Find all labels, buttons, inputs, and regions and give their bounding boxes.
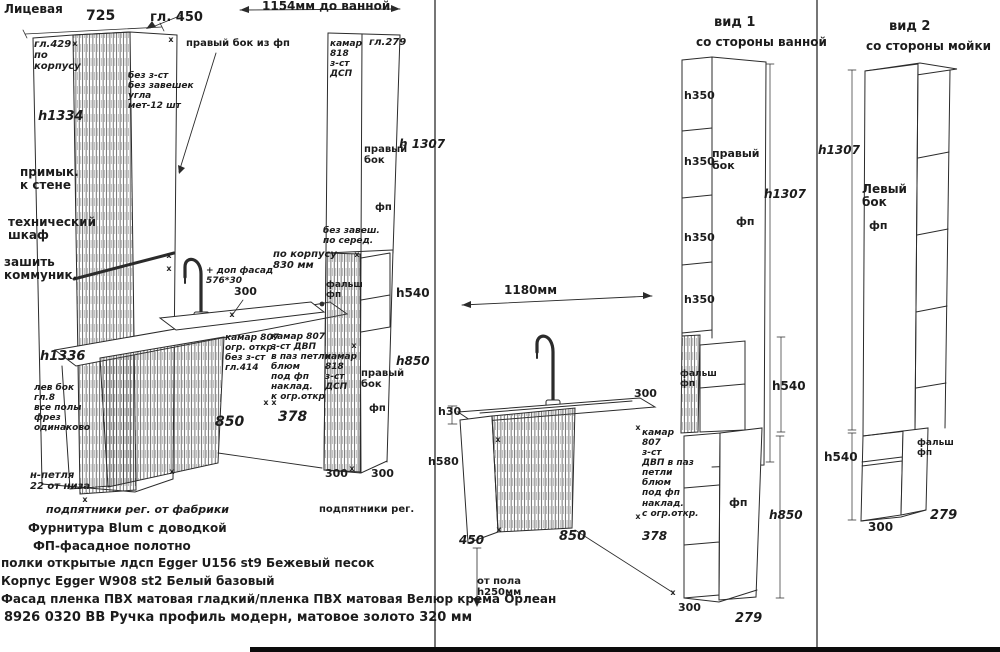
v1-fp-upper-label: фп — [736, 216, 755, 228]
v1-h540-label: h540 — [772, 380, 806, 393]
v2-left-side-label: Левый бок — [862, 183, 907, 210]
v1-dim-450: 450 — [459, 534, 484, 547]
technical-cabinet-note: технический шкаф — [8, 216, 96, 243]
v1-h580-label: h580 — [428, 456, 459, 468]
feet-note2: подпятники рег. — [319, 504, 414, 515]
extra-facade-note: + доп фасад 576*30 — [206, 266, 273, 286]
wall-adjacency-note: примык. к стене — [20, 166, 79, 193]
view1-faucet-icon — [537, 336, 560, 408]
dim-378: 378 — [278, 410, 307, 426]
mid-right-side-label2: правый бок — [361, 368, 404, 390]
view2-subtitle: со стороны мойки — [866, 40, 991, 53]
view1-title: вид 1 — [714, 16, 755, 31]
no-backwall-note: без з-ст без завешек угла мет-12 шт — [128, 71, 194, 111]
dim-300-b: 300 — [371, 468, 394, 480]
v1-h350-1: h350 — [684, 90, 715, 102]
v2-h1307-label: h1307 — [818, 144, 860, 157]
dim-1154-label: 1154мм до ванной — [262, 0, 390, 13]
dim-gl450: гл. 450 — [150, 11, 203, 26]
right-side-callout: правый бок из фп — [186, 38, 290, 49]
v1-h1307-label: h1307 — [764, 188, 806, 201]
spec-facade: Фасад пленка ПВХ матовая гладкий/пленка … — [1, 593, 556, 606]
x-mark: х — [166, 251, 172, 260]
dim-725: 725 — [86, 9, 115, 25]
v2-dim-300: 300 — [868, 521, 893, 534]
h1334-label: h1334 — [38, 110, 83, 125]
v1-fp-lower-label: фп — [729, 497, 748, 509]
v1-dim-300-top: 300 — [634, 388, 657, 400]
x-mark: х — [168, 35, 174, 44]
furniture-drawing-sheet: х х х х х х х х х х х х х х х х х Лицева… — [0, 0, 1000, 652]
v1-h850-label: h850 — [769, 509, 803, 522]
v1-h30-label: h30 — [438, 406, 461, 418]
left-side-note: лев бок гл.8 все полы фрез одинаково — [34, 383, 90, 433]
v1-dim-378: 378 — [642, 530, 667, 543]
kamar818-top-note: камар 818 з-ст ДСП — [330, 39, 362, 79]
v1-h350-3: h350 — [684, 232, 715, 244]
communications-note: зашить коммуник. — [4, 256, 77, 283]
v1-h350-2: h350 — [684, 156, 715, 168]
spec-handle: 8926 0320 ВВ Ручка профиль модерн, матов… — [4, 611, 472, 626]
x-mark: х — [349, 464, 355, 473]
kamar807-mid-note: камар 807 з-ст ДВП в паз петли блюм под … — [271, 332, 331, 403]
section-dividers — [435, 0, 817, 647]
mid-fp-upper-label: фп — [375, 202, 392, 213]
view1-subtitle: со стороны ванной — [696, 36, 827, 49]
x-mark: х — [263, 398, 269, 407]
v1-right-side-label: правый бок — [712, 148, 760, 173]
v2-h540-label: h540 — [824, 451, 858, 464]
no-hinge-note: без завеш. по серед. — [323, 226, 380, 246]
spec-shelves: полки открытые лдсп Egger U156 st9 Бежев… — [1, 557, 374, 570]
v2-falsh-label: фальш фп — [917, 438, 954, 458]
x-mark: х — [169, 467, 175, 476]
dim-300-a: 300 — [325, 468, 348, 480]
hinge-note: н-петля 22 от низа — [30, 470, 90, 492]
v1-dim-1180: 1180мм — [504, 284, 557, 297]
dim-850: 850 — [215, 415, 244, 431]
view2-title: вид 2 — [889, 20, 930, 35]
mid-fp-lower-label: фп — [369, 403, 386, 414]
x-mark: х — [496, 525, 502, 534]
spec-body: Корпус Egger W908 st2 Белый базовый — [1, 575, 275, 588]
h850-mid-label: h850 — [396, 355, 430, 368]
v2-fp-label: фп — [869, 220, 888, 232]
falsh-mid-label: фальш фп — [326, 280, 363, 300]
x-mark: х — [354, 250, 360, 259]
v1-dim-850: 850 — [559, 530, 586, 545]
h1336-label: h1336 — [40, 350, 85, 365]
x-mark: х — [495, 435, 501, 444]
mid-h1307-label: h 1307 — [399, 138, 445, 151]
v2-dim-279: 279 — [930, 509, 957, 524]
front-view-title: Лицевая — [4, 3, 63, 16]
x-mark: х — [635, 512, 641, 521]
v1-dim-279: 279 — [735, 612, 762, 627]
gl279-label: гл.279 — [369, 37, 406, 48]
gl429-note: гл.429 по корпусу — [34, 39, 81, 73]
v1-from-floor-note: от пола h250мм — [477, 576, 521, 598]
kamar818-low-note: камар 818 з-ст ДСП — [325, 352, 357, 392]
h540-mid-label: h540 — [396, 287, 430, 300]
dim-300-top: 300 — [234, 286, 257, 298]
x-mark: х — [229, 310, 235, 319]
v1-falsh-label: фальш фп — [680, 369, 717, 389]
feet-note: подпятники рег. от фабрики — [46, 504, 229, 516]
x-mark: х — [635, 423, 641, 432]
bottom-border-bar — [250, 647, 1000, 652]
v1-dim-300-bottom: 300 — [678, 602, 701, 614]
v1-kamar807-note: камар 807 з-ст ДВП в паз петли блюм под … — [642, 428, 699, 519]
x-mark: х — [351, 341, 357, 350]
v1-h350-4: h350 — [684, 294, 715, 306]
spec-fp-cloth: ФП-фасадное полотно — [33, 540, 191, 553]
spec-hardware: Фурнитура Blum с доводкой — [28, 522, 227, 535]
x-mark: х — [670, 588, 676, 597]
x-mark: х — [166, 264, 172, 273]
po-korpusu-note: по корпусу 830 мм — [273, 249, 337, 271]
